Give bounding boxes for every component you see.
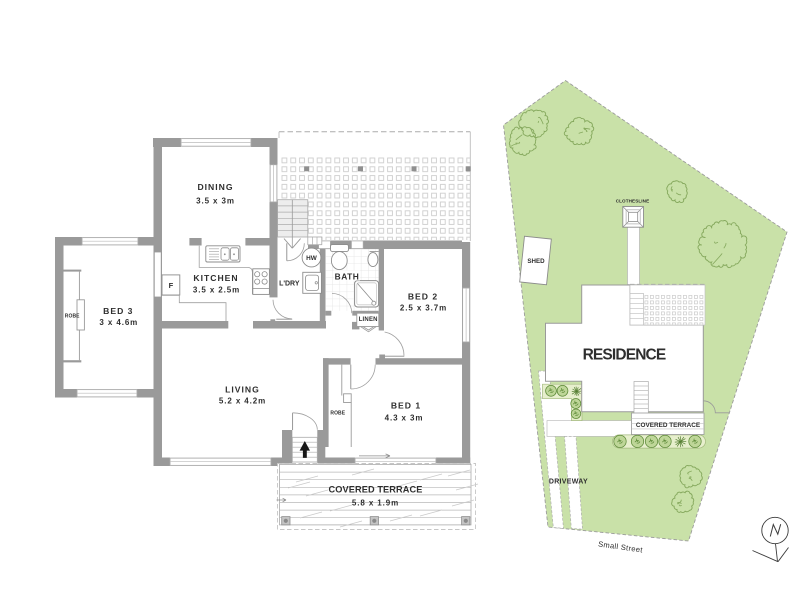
svg-text:5.8 x 1.9m: 5.8 x 1.9m xyxy=(352,498,399,507)
svg-text:3.5 x 2.5m: 3.5 x 2.5m xyxy=(193,285,240,294)
svg-text:BATH: BATH xyxy=(335,271,360,281)
svg-text:BED 3: BED 3 xyxy=(103,306,133,316)
svg-text:DINING: DINING xyxy=(197,182,233,192)
svg-text:SHED: SHED xyxy=(527,258,545,265)
svg-text:HW: HW xyxy=(306,255,318,262)
svg-text:KITCHEN: KITCHEN xyxy=(193,273,238,283)
svg-text:COVERED TERRACE: COVERED TERRACE xyxy=(636,422,701,429)
svg-text:BED 1: BED 1 xyxy=(391,400,421,410)
svg-text:2.5 x 3.7m: 2.5 x 3.7m xyxy=(400,304,447,313)
svg-text:L'DRY: L'DRY xyxy=(279,280,300,287)
svg-text:3.5 x 3m: 3.5 x 3m xyxy=(196,196,235,205)
svg-text:ROBE: ROBE xyxy=(330,411,345,417)
svg-text:CLOTHESLINE: CLOTHESLINE xyxy=(616,199,650,204)
svg-text:LIVING: LIVING xyxy=(225,384,260,394)
svg-text:ROBE: ROBE xyxy=(65,314,80,320)
svg-text:BED 2: BED 2 xyxy=(408,292,438,302)
svg-text:DRIVEWAY: DRIVEWAY xyxy=(549,479,588,486)
svg-text:3 x 4.6m: 3 x 4.6m xyxy=(99,318,138,327)
svg-text:COVERED TERRACE: COVERED TERRACE xyxy=(329,484,423,494)
svg-text:RESIDENCE: RESIDENCE xyxy=(583,347,666,364)
svg-text:LINEN: LINEN xyxy=(359,317,378,323)
svg-text:F: F xyxy=(169,281,174,290)
svg-text:5.2 x 4.2m: 5.2 x 4.2m xyxy=(219,396,266,405)
svg-text:4.3 x 3m: 4.3 x 3m xyxy=(385,413,424,422)
